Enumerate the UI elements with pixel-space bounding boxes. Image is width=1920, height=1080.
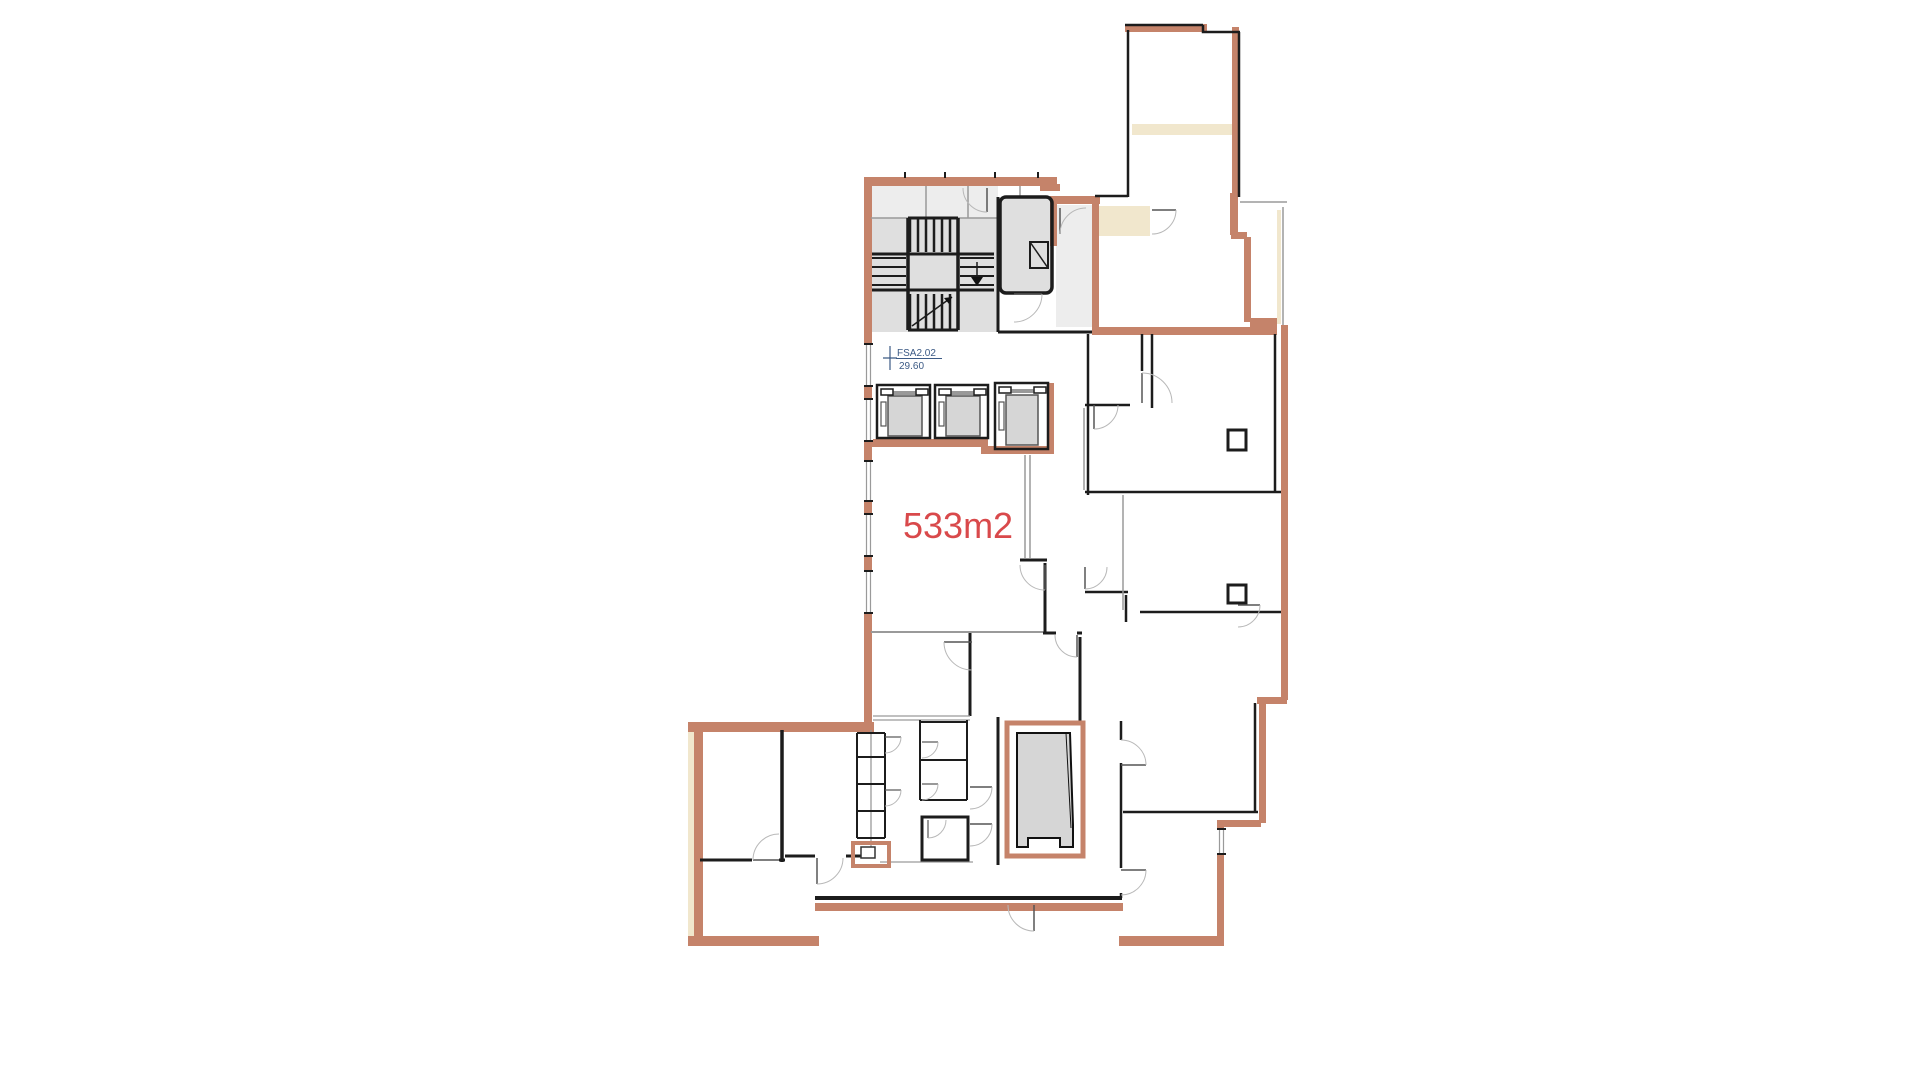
label-crosshair-icon: [883, 346, 897, 370]
door: [944, 642, 972, 670]
elevator-1: [877, 385, 930, 438]
door: [1121, 870, 1146, 895]
elevator-3: [995, 383, 1048, 449]
link-bridge-floor: [1098, 206, 1150, 236]
west-facade-windows: [863, 344, 873, 613]
door: [922, 784, 938, 800]
room-id-text: FSA2.02: [897, 348, 936, 359]
door: [1055, 635, 1077, 657]
room-id-label: FSA2.02 29.60: [883, 346, 942, 372]
door: [1094, 405, 1118, 429]
exterior-walls: [688, 24, 1288, 946]
door: [1142, 373, 1172, 403]
elevator-door-block: [1034, 387, 1046, 393]
north-wing-outline: [1095, 25, 1240, 197]
door: [928, 820, 946, 838]
floor-plan-page: 533m2 FSA2.02 29.60: [0, 0, 1920, 1080]
door: [1121, 740, 1146, 765]
southeast-window: [1216, 829, 1226, 854]
door: [1014, 294, 1042, 322]
wing-wall-band: [1132, 124, 1232, 135]
door: [970, 787, 992, 809]
elevator-door-block: [939, 389, 951, 395]
elevator-door-block: [999, 387, 1011, 393]
room-value-text: 29.60: [899, 361, 924, 372]
elevator-rail: [881, 402, 886, 426]
door: [885, 737, 901, 753]
elevator-door-block: [974, 389, 986, 395]
door: [753, 834, 779, 860]
door: [1020, 565, 1045, 590]
elevator-bank: [877, 383, 1048, 449]
column-2: [1228, 585, 1246, 603]
elevator-rail: [939, 402, 944, 426]
door: [1152, 210, 1176, 234]
door: [817, 858, 843, 884]
door: [885, 790, 901, 806]
elevator-2: [935, 385, 988, 438]
stair-landing: [908, 254, 958, 290]
elevator-door-block: [881, 389, 893, 395]
door: [970, 824, 992, 846]
door: [1085, 567, 1107, 589]
elevator-door-block: [916, 389, 928, 395]
door: [1238, 605, 1260, 627]
door: [922, 742, 938, 758]
floor-plan-drawing: 533m2 FSA2.02 29.60: [0, 0, 1920, 1080]
service-shaft-room: [1007, 723, 1083, 856]
elevator-rail: [999, 402, 1004, 430]
shaft-body: [1017, 733, 1073, 847]
column-1: [1228, 430, 1246, 450]
area-label: 533m2: [903, 505, 1013, 546]
